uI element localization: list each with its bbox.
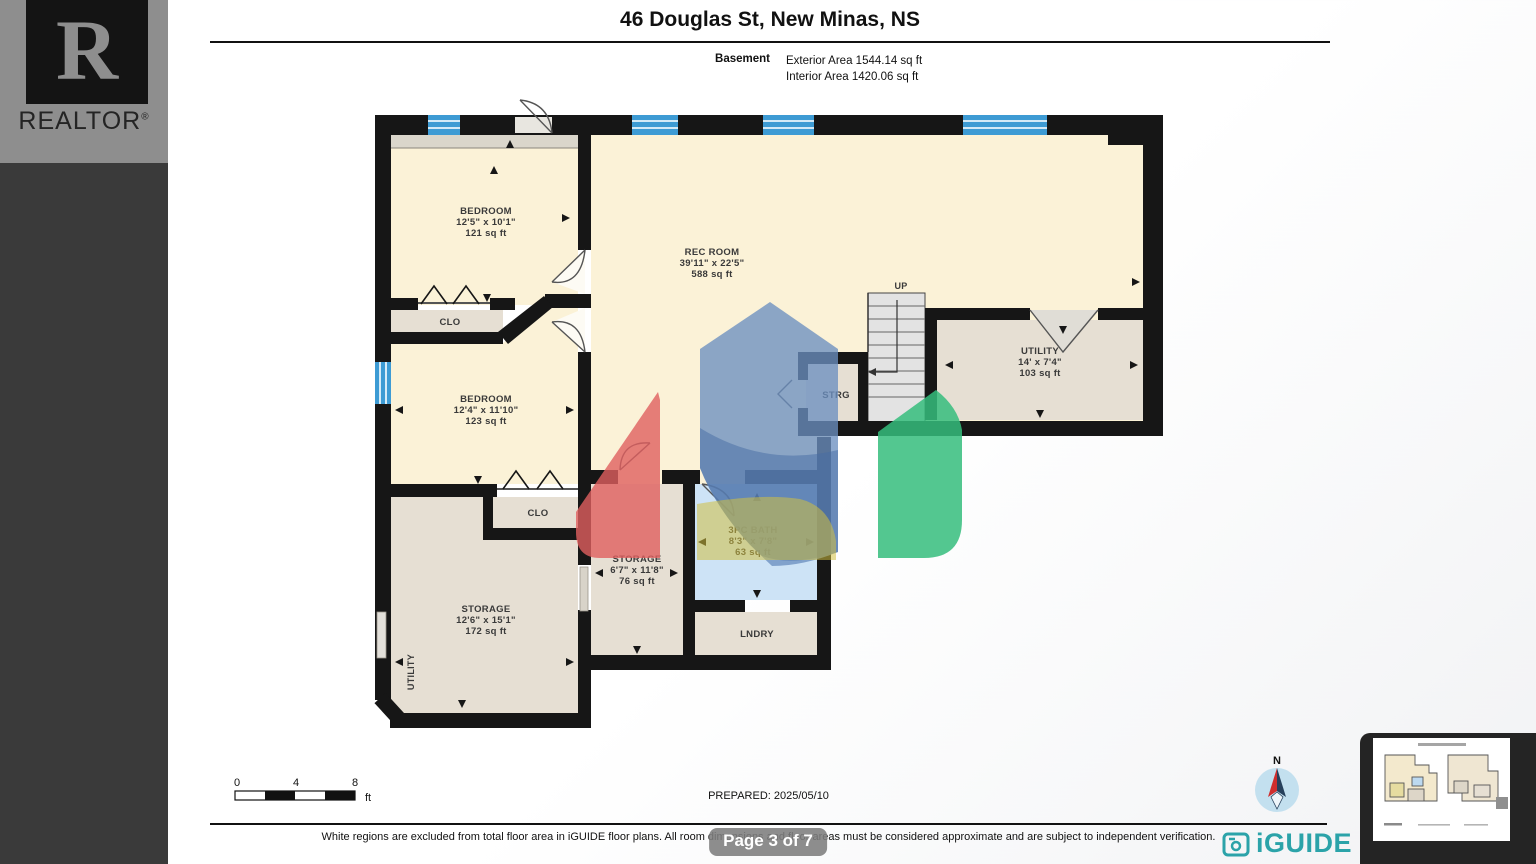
- iguide-wordmark: iGUIDE: [1256, 828, 1352, 859]
- iguide-camera-icon: [1222, 831, 1250, 857]
- bedroom2-name: BEDROOM: [460, 394, 512, 405]
- utility-side-label: UTILITY: [406, 654, 416, 690]
- page-thumbnail[interactable]: [1360, 733, 1536, 864]
- thumbnail-next-button[interactable]: [1496, 797, 1508, 809]
- footer-divider: [210, 823, 1327, 825]
- staircase: [868, 293, 925, 422]
- prepared-date: PREPARED: 2025/05/10: [210, 790, 1327, 802]
- compass-north-label: N: [1273, 755, 1281, 767]
- storage-small-area: 76 sq ft: [619, 576, 655, 587]
- utility-name: UTILITY: [1021, 346, 1059, 357]
- rec-room-dims: 39'11" x 22'5": [680, 258, 745, 269]
- laundry-label: LNDRY: [740, 629, 774, 640]
- bedroom1-area: 121 sq ft: [465, 228, 507, 239]
- rec-room-name: REC ROOM: [685, 247, 740, 258]
- page-number-badge: Page 3 of 7: [709, 828, 827, 856]
- storage-large-dims: 12'6" x 15'1": [456, 615, 516, 626]
- closet1-label: CLO: [440, 317, 461, 328]
- storage-large-name: STORAGE: [462, 604, 511, 615]
- scale-tick-8: 8: [352, 777, 358, 789]
- storage-small-dims: 6'7" x 11'8": [610, 565, 664, 576]
- stairs-up-label: UP: [894, 281, 907, 291]
- utility-area: 103 sq ft: [1019, 368, 1061, 379]
- scale-tick-0: 0: [234, 777, 240, 789]
- rec-room-area: 588 sq ft: [691, 269, 733, 280]
- floorplan-drawing: BEDROOM 12'5" x 10'1" 121 sq ft REC ROOM…: [0, 0, 1536, 864]
- bedroom2-area: 123 sq ft: [465, 416, 507, 427]
- storage-large-area: 172 sq ft: [465, 626, 507, 637]
- compass: N: [1255, 755, 1299, 812]
- scale-tick-4: 4: [293, 777, 299, 789]
- bedroom1-dims: 12'5" x 10'1": [456, 217, 516, 228]
- iguide-logo: iGUIDE: [1222, 828, 1352, 859]
- page-thumbnail-panel[interactable]: [1360, 733, 1536, 864]
- closet2-label: CLO: [528, 508, 549, 519]
- utility-dims: 14' x 7'4": [1018, 357, 1062, 368]
- bedroom1-name: BEDROOM: [460, 206, 512, 217]
- bedroom2-dims: 12'4" x 11'10": [454, 405, 519, 416]
